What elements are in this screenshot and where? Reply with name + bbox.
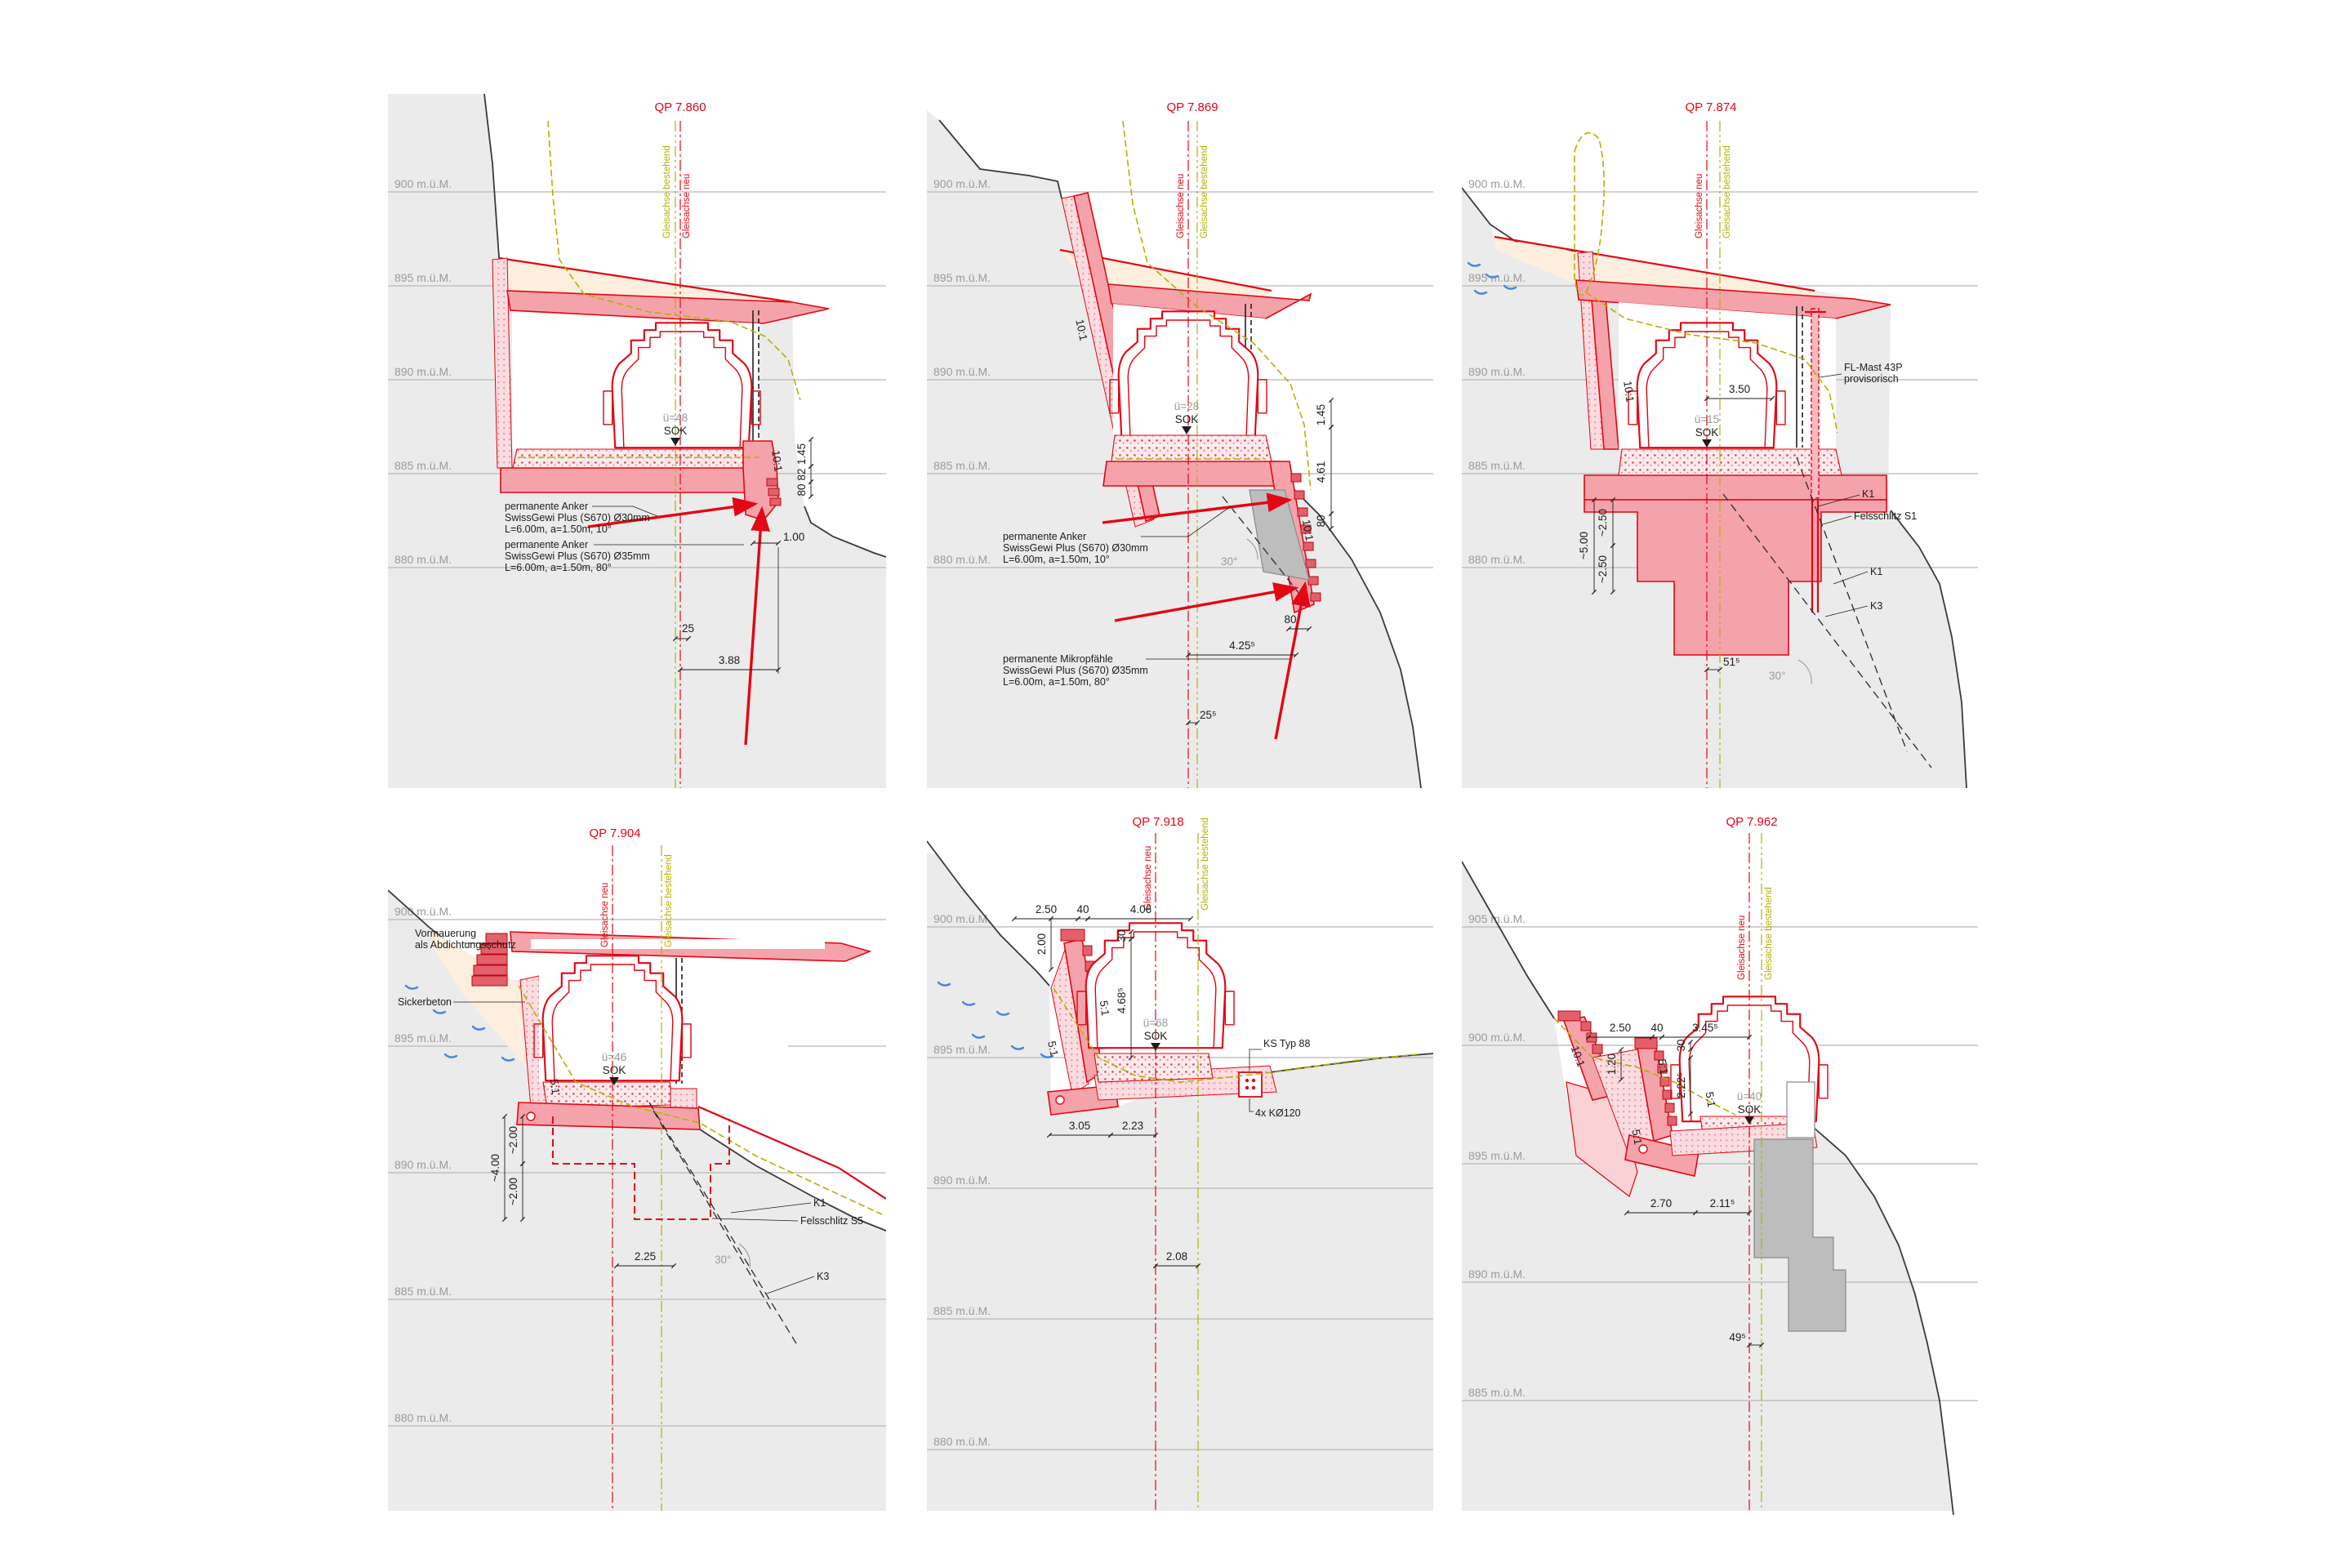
dim-label: 1.20	[1606, 1053, 1618, 1075]
elev-label: 895 m.ü.M.	[394, 271, 452, 284]
dim-label: 2.25	[635, 1250, 656, 1263]
train-label: ü=40	[1737, 1090, 1762, 1102]
existing-wall	[1787, 1082, 1815, 1138]
axis-label: Gleisachse bestehend	[1722, 145, 1732, 238]
dim-label: 1.00	[783, 531, 804, 543]
ref-label: KS Typ 88	[1263, 1038, 1310, 1049]
sok-label: SOK	[1738, 1103, 1762, 1116]
elev-label: 885 m.ü.M.	[1468, 1386, 1526, 1399]
elev-label: 900 m.ü.M.	[1468, 177, 1526, 190]
ann-line: SwissGewi Plus (S670) Ø30mm	[1003, 542, 1148, 554]
axis-label: Gleisachse neu	[682, 174, 692, 238]
ref-label: FL-Mast 43P	[1844, 362, 1903, 373]
train-label: ü=28	[1174, 400, 1199, 412]
panel-qp-7-860: 900 m.ü.M. 895 m.ü.M. 890 m.ü.M. 885 m.ü…	[388, 49, 886, 792]
ann-line: permanente Mikropfähle	[1003, 653, 1113, 665]
dim-label: 4.06	[1130, 903, 1151, 915]
axis-label: Gleisachse neu	[600, 883, 610, 947]
dim-label: ~2.00	[507, 1178, 519, 1205]
dim-label: ~5.00	[1578, 532, 1590, 559]
dim-label: 1.45	[795, 443, 808, 465]
ann-line: permanente Anker	[505, 539, 588, 550]
ref-label: Sickerbeton	[398, 996, 452, 1008]
ann-line: SwissGewi Plus (S670) Ø35mm	[505, 550, 650, 562]
train-label: ü=48	[663, 412, 688, 424]
axis-label: Gleisachse bestehend	[664, 854, 674, 947]
elev-label: 895 m.ü.M.	[1468, 271, 1526, 284]
ref-label: Felsschlitz S1	[1854, 510, 1917, 522]
sok-label: SOK	[1175, 413, 1199, 425]
elev-label: 900 m.ü.M.	[1468, 1031, 1526, 1044]
ann-line: L=6.00m, a=1.50m, 10°	[505, 523, 612, 535]
dim-label: 49⁵	[1729, 1331, 1746, 1343]
ref-label: provisorisch	[1844, 373, 1899, 385]
dim-label: 1.45	[1315, 404, 1327, 425]
sok-label: SOK	[664, 425, 688, 437]
ref-label: K3	[817, 1271, 829, 1282]
dim-label: 30	[1675, 1039, 1687, 1051]
axis-label: Gleisachse bestehend	[1200, 817, 1210, 911]
elev-label: 890 m.ü.M.	[394, 365, 452, 378]
panel-qp-7-962: 905 m.ü.M. 900 m.ü.M. 895 m.ü.M. 890 m.ü…	[1462, 813, 1978, 1515]
angle-label: 30°	[1221, 555, 1237, 568]
dim-label: ~4.00	[489, 1154, 501, 1182]
dim-label: 51⁵	[1723, 656, 1740, 668]
sok-label: SOK	[1144, 1030, 1168, 1042]
elev-label: 880 m.ü.M.	[933, 553, 991, 566]
elev-label: 885 m.ü.M.	[933, 459, 991, 472]
dim-label: 80	[1315, 514, 1327, 527]
slope-label: 5:1	[548, 1078, 562, 1095]
dim-label: 80	[795, 483, 808, 496]
dim-label: 25⁵	[1200, 709, 1217, 721]
train-label: ü=15	[1695, 413, 1719, 425]
ref-label: K1	[1870, 566, 1882, 577]
dim-label: 2.50	[1610, 1022, 1631, 1034]
ann-line: permanente Anker	[505, 501, 588, 512]
dim-label: 2.23	[1122, 1120, 1143, 1132]
panel-qp-7-918: 900 m.ü.M. 895 m.ü.M. 890 m.ü.M. 885 m.ü…	[927, 813, 1433, 1515]
dim-label: ~2.00	[507, 1126, 519, 1154]
terrain	[1462, 853, 1978, 1515]
elev-label: 885 m.ü.M.	[394, 1285, 452, 1298]
axis-label: Gleisachse neu	[1737, 915, 1747, 980]
ref-label: als Abdichtungsschutz	[415, 939, 516, 951]
elev-label: 900 m.ü.M.	[933, 177, 991, 190]
elev-label: 880 m.ü.M.	[933, 1435, 991, 1448]
panel-qp-7-904: 900 m.ü.M. 895 m.ü.M. 890 m.ü.M. 885 m.ü…	[388, 813, 886, 1515]
slope-label: 5:1	[1098, 1000, 1111, 1017]
ann-line: L=6.00m, a=1.50m, 80°	[1003, 676, 1110, 688]
elev-label: 895 m.ü.M.	[394, 1031, 452, 1045]
elev-label: 885 m.ü.M.	[1468, 459, 1526, 472]
dim-label: 30	[1116, 929, 1128, 942]
train-label: ü=46	[602, 1051, 626, 1063]
axis-label: Gleisachse bestehend	[1764, 887, 1774, 980]
drawing-sheet: 900 m.ü.M. 895 m.ü.M. 890 m.ü.M. 885 m.ü…	[0, 0, 2352, 1568]
elev-label: 900 m.ü.M.	[394, 177, 452, 190]
elev-label: 900 m.ü.M.	[933, 912, 991, 925]
dim-label: 82	[795, 468, 808, 480]
ref-label: K1	[813, 1197, 826, 1209]
dim-label: 2.22⁵	[1675, 1072, 1687, 1098]
dim-label: 40	[1076, 903, 1089, 915]
dim-label: 3.05	[1069, 1120, 1090, 1132]
ref-label: K3	[1870, 600, 1882, 612]
elev-label: 895 m.ü.M.	[933, 271, 991, 284]
axis-label: Gleisachse neu	[1176, 174, 1186, 238]
sok-label: SOK	[1695, 426, 1719, 439]
panel-qp-7-874: 900 m.ü.M. 895 m.ü.M. 890 m.ü.M. 885 m.ü…	[1462, 49, 1978, 792]
qp-title: QP 7.860	[654, 100, 706, 114]
qp-title: QP 7.962	[1726, 815, 1777, 829]
qp-title: QP 7.874	[1685, 100, 1736, 114]
ref-label: Vormauerung	[415, 928, 476, 939]
ann-line: SwissGewi Plus (S670) Ø35mm	[1003, 665, 1148, 676]
qp-title: QP 7.869	[1166, 100, 1218, 114]
dim-label: 2.00	[1036, 933, 1048, 955]
dim-label: 2.50	[1036, 903, 1057, 915]
slope-label: 5:1	[1655, 1058, 1670, 1076]
dim-label: 80	[1284, 613, 1296, 626]
slope-label: 5:1	[1703, 1091, 1717, 1108]
elev-label: 890 m.ü.M.	[394, 1158, 452, 1171]
elev-label: 890 m.ü.M.	[933, 365, 991, 378]
ref-label: K1	[1862, 488, 1874, 500]
angle-label: 30°	[715, 1254, 731, 1266]
elev-label: 885 m.ü.M.	[933, 1304, 991, 1317]
dim-label: 3.50	[1729, 383, 1750, 395]
axis-label: Gleisachse neu	[1695, 174, 1704, 238]
dim-label: ~2.50	[1597, 555, 1609, 583]
elev-label: 900 m.ü.M.	[394, 905, 452, 918]
axis-label: Gleisachse neu	[1143, 846, 1153, 911]
dim-label: 4.68⁵	[1116, 987, 1128, 1013]
elev-label: 895 m.ü.M.	[933, 1043, 991, 1056]
axis-label: Gleisachse bestehend	[662, 145, 672, 238]
dim-label: 2.70	[1650, 1197, 1672, 1209]
qp-title: QP 7.918	[1132, 815, 1183, 829]
elev-label: 890 m.ü.M.	[1468, 365, 1526, 378]
ann-line: L=6.00m, a=1.50m, 80°	[505, 562, 612, 573]
angle-label: 30°	[1769, 670, 1785, 682]
dim-label: 25	[682, 622, 694, 635]
axis-label: Gleisachse bestehend	[1200, 145, 1209, 238]
elev-label: 880 m.ü.M.	[1468, 553, 1526, 566]
elev-label: 890 m.ü.M.	[1468, 1267, 1526, 1281]
qp-title: QP 7.904	[589, 826, 640, 840]
dim-label: 4.61	[1315, 461, 1327, 483]
dim-label: 3.45⁵	[1692, 1022, 1718, 1034]
elev-label: 880 m.ü.M.	[394, 553, 452, 566]
elev-label: 895 m.ü.M.	[1468, 1149, 1526, 1162]
elev-label: 880 m.ü.M.	[394, 1411, 452, 1424]
dim-label: 4.25⁵	[1229, 639, 1255, 652]
ann-line: SwissGewi Plus (S670) Ø30mm	[505, 512, 650, 523]
ann-line: permanente Anker	[1003, 531, 1086, 542]
ref-label: Felsschlitz S5	[800, 1215, 863, 1227]
dim-label: ~2.50	[1597, 509, 1609, 537]
dim-label: 40	[1650, 1022, 1663, 1034]
train-label: ü=68	[1143, 1017, 1168, 1029]
dim-label: 2.08	[1166, 1250, 1187, 1263]
elev-label: 885 m.ü.M.	[394, 459, 452, 472]
panel-qp-7-869: 900 m.ü.M. 895 m.ü.M. 890 m.ü.M. 885 m.ü…	[927, 49, 1433, 792]
slope-label: 5:1	[1629, 1129, 1644, 1146]
ann-line: L=6.00m, a=1.50m, 10°	[1003, 554, 1110, 565]
dim-label: 3.88	[719, 654, 740, 666]
ref-label: 4x KØ120	[1255, 1107, 1301, 1119]
dim-label: 2.11⁵	[1710, 1197, 1735, 1209]
sok-label: SOK	[603, 1064, 626, 1076]
elev-label: 890 m.ü.M.	[933, 1174, 991, 1187]
